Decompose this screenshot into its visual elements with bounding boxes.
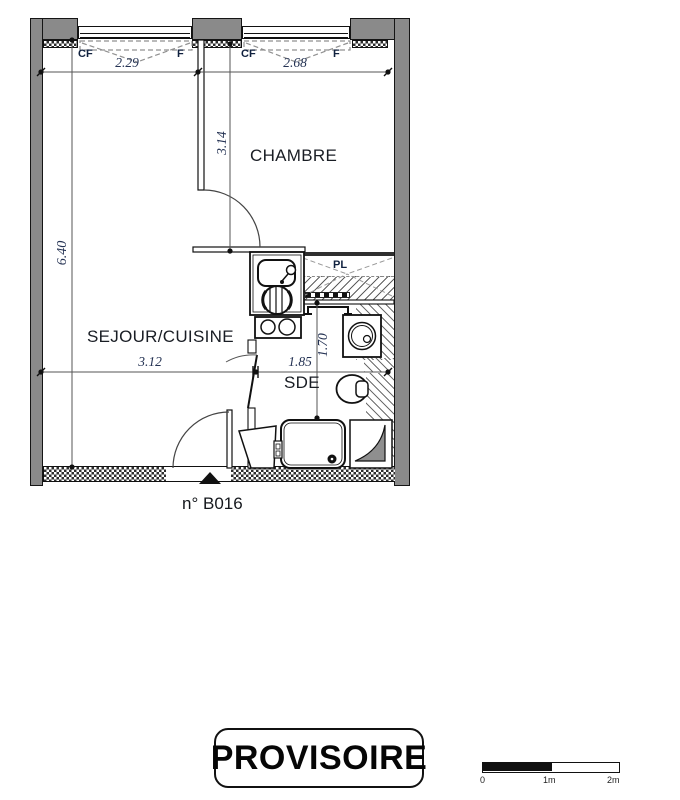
dim-chambre-depth: 3.14 [214,108,230,178]
cooktop [255,317,301,338]
shower-tray [281,420,345,468]
room-label-chambre: CHAMBRE [250,146,337,166]
kitchen-unit [250,252,304,338]
wall-top-middle-pier [192,18,242,40]
scale-tick-0: 0 [480,775,485,785]
floor-plan-page: CF F CF F 2.29 2.68 3.14 6.40 3.12 1.85 … [0,0,680,800]
scale-bar-filled-segment [483,763,552,771]
wall-bottom-checker-left [44,467,166,481]
window-frame-2 [242,26,350,39]
room-label-sde: SDE [284,373,320,393]
kitchen-sink [258,260,295,286]
wall-bottom-band [43,466,394,482]
duct-hatch-toilet [366,373,394,463]
dim-window1: 2.29 [95,55,159,71]
dim-sejour-width: 3.12 [126,354,174,370]
unit-number-label: n° B016 [182,494,243,514]
dim-sde-depth: 1.70 [315,310,331,380]
chambre-door-arc [204,190,260,247]
insulation-strip-left [43,40,78,48]
window-glazing-line-1 [80,33,190,38]
scale-tick-2m: 2m [607,775,620,785]
dim-window2: 2.68 [263,55,327,71]
wall-left [30,18,43,486]
insulation-strip-middle [192,40,242,48]
scale-bar [482,762,620,773]
sde-door [226,340,257,468]
window2-cf-label: CF [241,48,256,60]
dimension-lines [41,40,388,467]
shower-drain-icon [328,455,337,464]
window1-f-label: F [177,48,184,60]
insulation-strip-right [352,40,388,48]
window1-cf-label: CF [78,48,93,60]
window-frame-1 [78,26,192,39]
sliding-door-rail [305,292,350,298]
under-sink-appliance [263,286,292,314]
toilet [337,375,369,403]
window-glazing-line-2 [244,33,348,38]
faucet-icon [287,266,296,275]
duct-hatch-middle [364,358,394,372]
scale-tick-1m: 1m [543,775,556,785]
window2-f-label: F [333,48,340,60]
room-label-sejour-cuisine: SEJOUR/CUISINE [87,327,234,347]
wall-right [394,18,410,486]
duct-hatch-washing-machine [356,303,394,360]
washbasin [239,426,282,468]
provisoire-stamp: PROVISOIRE [214,728,424,788]
room-label-placard: PL [333,259,347,271]
wall-bottom-checker-right [231,467,395,481]
dimension-nodes [38,37,390,469]
dim-interior-height: 6.40 [55,218,71,288]
